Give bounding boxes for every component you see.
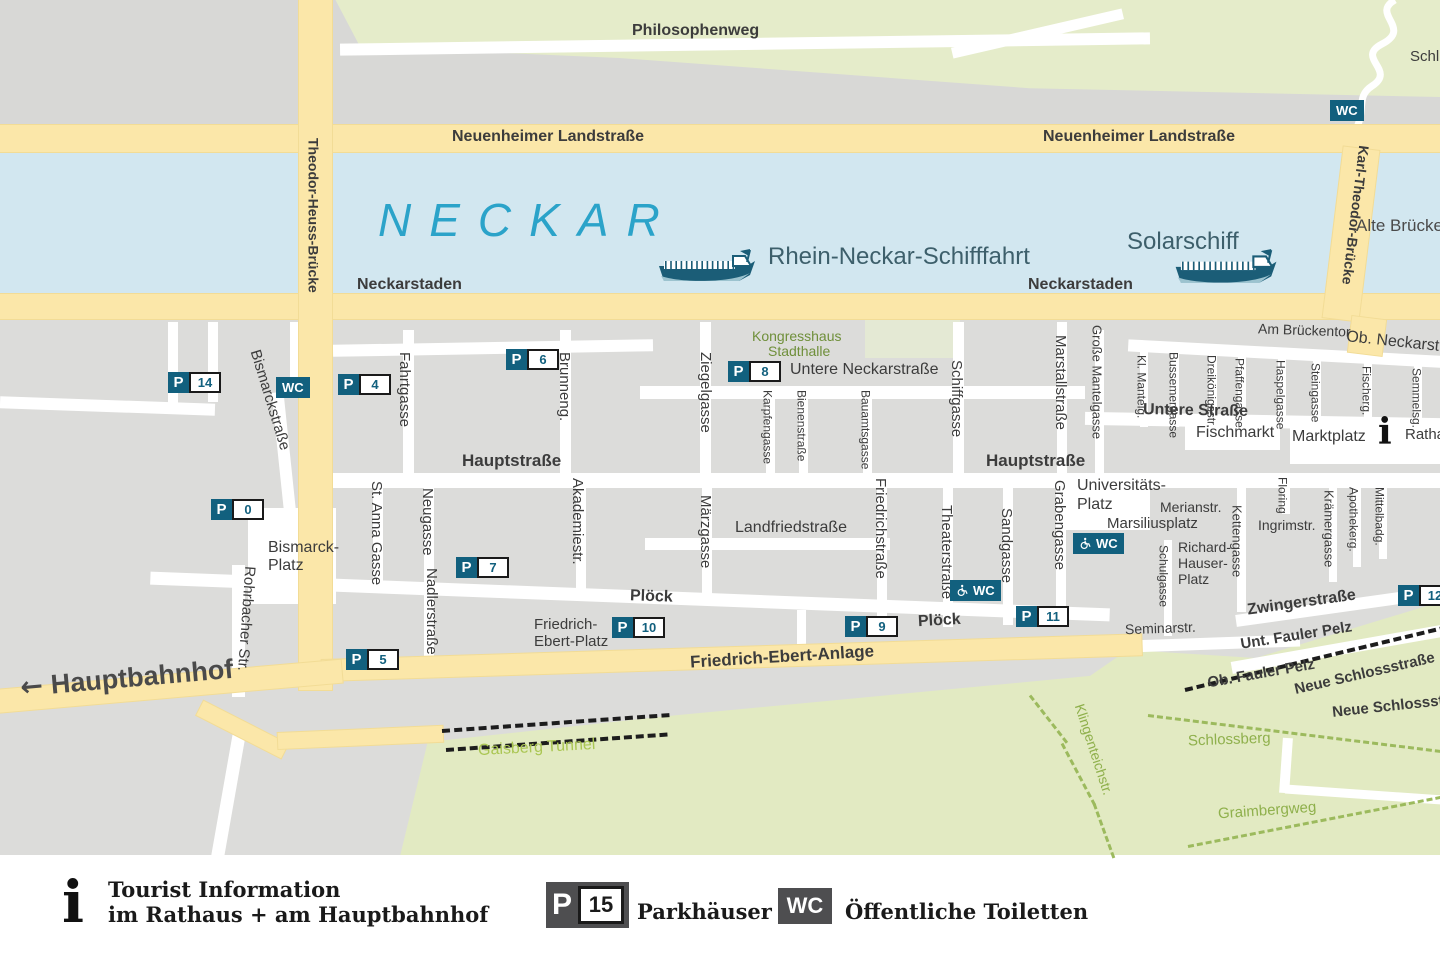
label-philosophenweg: Philosophenweg bbox=[632, 23, 759, 40]
label-mittelbadgasse: Mittelbadg. bbox=[1373, 487, 1386, 546]
label-seminarstrasse: Seminarstr. bbox=[1125, 620, 1196, 637]
label-hauptstrasse-east: Hauptstraße bbox=[986, 452, 1085, 470]
parking-icon: P bbox=[168, 372, 189, 393]
stadthalle-block bbox=[865, 320, 960, 358]
accessible-wc-badge: WC bbox=[1073, 533, 1124, 554]
legend-parking-label: Parkhäuser bbox=[637, 900, 772, 925]
label-kongresshaus: Kongresshaus bbox=[752, 329, 842, 344]
label-schulgasse: Schulgasse bbox=[1157, 545, 1170, 607]
street-landfriedstrasse bbox=[645, 538, 890, 550]
label-stadthalle: Stadthalle bbox=[768, 344, 830, 359]
wheelchair-icon bbox=[1079, 537, 1092, 550]
label-maerzgasse: Märzgasse bbox=[697, 495, 713, 568]
legend-wc-label: Öffentliche Toiletten bbox=[845, 900, 1088, 925]
road-neckarstaden bbox=[0, 294, 1440, 319]
label-neckarstaden-east: Neckarstaden bbox=[1028, 277, 1133, 294]
label-karpfengasse: Karpfengasse bbox=[761, 390, 774, 464]
legend-tourist-info: Tourist Information im Rathaus + am Haup… bbox=[108, 878, 488, 928]
parking-icon: P bbox=[346, 649, 367, 670]
parking-badge-p10: P 10 bbox=[612, 617, 665, 638]
parking-badge-p14: P 14 bbox=[168, 372, 221, 393]
label-fischergasse: Fischerg. bbox=[1360, 366, 1373, 415]
label-fischmarkt: Fischmarkt bbox=[1196, 425, 1274, 442]
label-solarschiff: Solarschiff bbox=[1127, 229, 1239, 254]
label-richard-hauser-1: Richard- bbox=[1178, 540, 1231, 555]
label-neugasse: Neugasse bbox=[419, 488, 435, 556]
label-ploeck-east: Plöck bbox=[918, 612, 962, 631]
label-hauptstrasse-west: Hauptstraße bbox=[462, 452, 561, 470]
label-rathaus: Ratha bbox=[1405, 427, 1440, 443]
label-neckarstaden-west: Neckarstaden bbox=[357, 277, 462, 294]
label-neuenheimer-west: Neuenheimer Landstraße bbox=[452, 129, 644, 146]
label-friedrichstrasse: Friedrichstraße bbox=[872, 478, 888, 579]
wc-badge: WC bbox=[1330, 100, 1364, 121]
heidelberg-city-map: Philosophenweg Schl Neuenheimer Landstra… bbox=[0, 0, 1440, 960]
parking-number: 15 bbox=[578, 886, 624, 924]
accessible-wc-badge: WC bbox=[950, 580, 1001, 601]
parking-icon: P bbox=[456, 557, 477, 578]
label-neuenheimer-east: Neuenheimer Landstraße bbox=[1043, 129, 1235, 146]
label-ingrimstrasse: Ingrimstr. bbox=[1258, 518, 1316, 533]
label-friedrich-ebert-platz-1: Friedrich- bbox=[534, 617, 597, 633]
label-schiffgasse: Schiffgasse bbox=[948, 360, 964, 437]
label-merianstrasse: Merianstr. bbox=[1160, 500, 1221, 515]
parking-icon: P bbox=[546, 888, 578, 922]
wheelchair-icon bbox=[956, 584, 969, 597]
road-theodor-heuss-bruecke bbox=[299, 0, 332, 690]
label-untere-strasse: Untere Straße bbox=[1143, 402, 1248, 421]
label-schlangenweg: Schl bbox=[1410, 49, 1439, 65]
label-bismarckplatz-2: Platz bbox=[268, 558, 304, 575]
label-sandgasse: Sandgasse bbox=[998, 508, 1014, 583]
label-grabengasse: Grabengasse bbox=[1051, 480, 1067, 570]
legend-tourist-line2: im Rathaus + am Hauptbahnhof bbox=[108, 903, 488, 928]
parking-badge-p6: P 6 bbox=[506, 349, 559, 370]
label-kettengasse: Kettengasse bbox=[1230, 505, 1244, 577]
label-bauamtsgasse: Bauamtsgasse bbox=[859, 390, 872, 469]
label-universitaetsplatz-1: Universitäts- bbox=[1077, 478, 1166, 495]
parking-badge-p0: P 0 bbox=[211, 499, 264, 520]
label-bienenstrasse: Bienenstraße bbox=[795, 390, 808, 461]
parking-icon: P bbox=[338, 374, 359, 395]
label-untere-neckarstrasse: Untere Neckarstraße bbox=[790, 362, 939, 379]
label-grosse-mantelgasse: Große Mantelgasse bbox=[1090, 325, 1104, 439]
label-akademiestrasse: Akademiestr. bbox=[569, 478, 585, 565]
wc-badge: WC bbox=[276, 377, 310, 398]
label-ziegelgasse: Ziegelgasse bbox=[697, 352, 713, 433]
label-floringasse: Floring bbox=[1276, 477, 1289, 514]
label-schlossberg: Schlossberg bbox=[1188, 731, 1271, 750]
parking-badge-p12: P 12 bbox=[1398, 585, 1440, 606]
parking-badge-p5: P 5 bbox=[346, 649, 399, 670]
label-landfriedstrasse: Landfriedstraße bbox=[735, 520, 847, 537]
parking-badge-p4: P 4 bbox=[338, 374, 391, 395]
parking-number: 5 bbox=[367, 649, 399, 670]
parking-number: 0 bbox=[232, 499, 264, 520]
parking-number: 11 bbox=[1037, 606, 1069, 627]
label-kraemergasse: Krämergasse bbox=[1322, 490, 1336, 567]
label-theodor-heuss-bruecke: Theodor-Heuss-Brücke bbox=[306, 138, 321, 293]
parking-number: 6 bbox=[527, 349, 559, 370]
parking-number: 12 bbox=[1419, 585, 1440, 606]
label-marktplatz: Marktplatz bbox=[1292, 429, 1366, 446]
label-marstallstrasse: Marstallstraße bbox=[1052, 335, 1068, 430]
label-semmelsgasse: Semmelsg. bbox=[1410, 368, 1423, 428]
label-richard-hauser-2: Hauser- bbox=[1178, 556, 1228, 571]
parking-number: 9 bbox=[866, 616, 898, 637]
legend-parking-badge: P 15 bbox=[546, 882, 629, 928]
legend-wc-badge: WC bbox=[778, 888, 832, 924]
parking-icon: P bbox=[612, 617, 633, 638]
arrow-left-icon: ← bbox=[19, 670, 44, 703]
parking-icon: P bbox=[211, 499, 232, 520]
label-apothekergasse: Apothekerg. bbox=[1347, 487, 1360, 552]
parking-icon: P bbox=[845, 616, 866, 637]
legend-tourist-line1: Tourist Information bbox=[108, 878, 488, 903]
label-fahrtgasse: Fahrtgasse bbox=[396, 352, 412, 427]
info-icon: i bbox=[1378, 414, 1392, 452]
parking-icon: P bbox=[1398, 585, 1419, 606]
parking-number: 7 bbox=[477, 557, 509, 578]
label-st-anna-gasse: St. Anna Gasse bbox=[368, 481, 384, 585]
parking-number: 4 bbox=[359, 374, 391, 395]
parking-icon: P bbox=[728, 361, 749, 382]
label-am-brueckentor: Am Brückentor bbox=[1258, 321, 1351, 339]
label-universitaetsplatz-2: Platz bbox=[1077, 497, 1113, 514]
label-ploeck-west: Plöck bbox=[630, 588, 673, 606]
parking-icon: P bbox=[506, 349, 527, 370]
label-rhein-neckar-schifffahrt: Rhein-Neckar-Schifffahrt bbox=[768, 244, 1030, 269]
parking-number: 14 bbox=[189, 372, 221, 393]
parking-badge-p8: P 8 bbox=[728, 361, 781, 382]
legend-info-icon: i bbox=[62, 872, 84, 933]
label-bussemergasse: Bussemergasse bbox=[1167, 352, 1180, 438]
cruise-ship-icon bbox=[650, 248, 762, 288]
label-neckar-river: NECKAR bbox=[378, 196, 678, 244]
parking-badge-p9: P 9 bbox=[845, 616, 898, 637]
parking-number: 10 bbox=[633, 617, 665, 638]
label-nadlerstrasse: Nadlerstraße bbox=[423, 568, 439, 655]
label-richard-hauser-3: Platz bbox=[1178, 572, 1209, 587]
label-bismarckplatz-1: Bismarck- bbox=[268, 540, 339, 557]
parking-badge-p11: P 11 bbox=[1016, 606, 1069, 627]
parking-icon: P bbox=[1016, 606, 1037, 627]
parking-badge-p7: P 7 bbox=[456, 557, 509, 578]
label-marsiliusplatz: Marsiliusplatz bbox=[1107, 516, 1198, 532]
parking-number: 8 bbox=[749, 361, 781, 382]
label-friedrich-ebert-platz-2: Ebert-Platz bbox=[534, 634, 608, 650]
label-alte-bruecke: Alte Brücke bbox=[1356, 217, 1440, 235]
label-haspelgasse: Haspelgasse bbox=[1274, 360, 1287, 429]
label-steingasse: Steingasse bbox=[1309, 363, 1322, 422]
